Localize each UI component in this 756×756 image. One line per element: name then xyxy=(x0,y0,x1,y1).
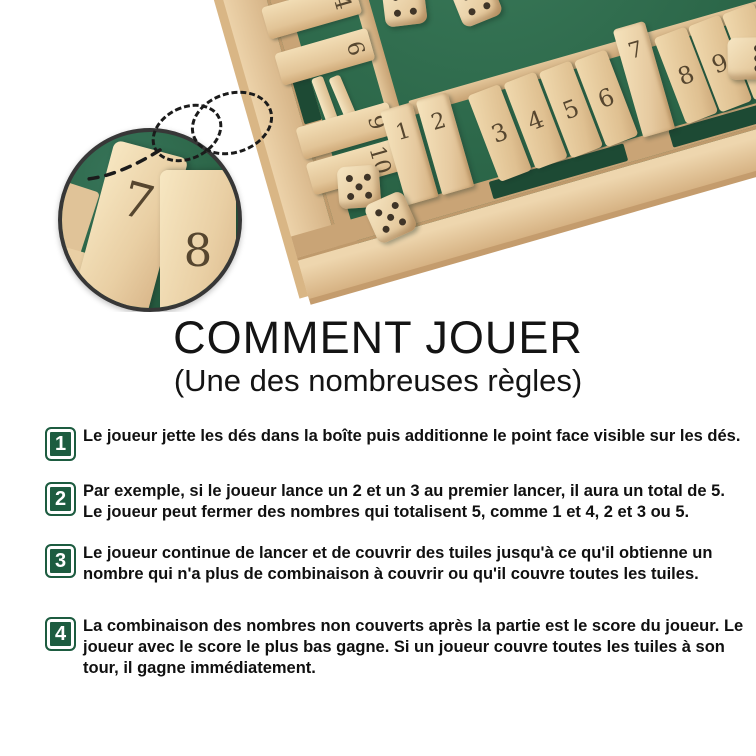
step-1-badge: 1 xyxy=(45,427,76,461)
step-2-text: Par exemple, si le joueur lance un 2 et … xyxy=(83,481,746,523)
step-1: 1 Le joueur jette les dés dans la boîte … xyxy=(45,426,746,461)
step-4-text: La combinaison des nombres non couverts … xyxy=(83,616,746,679)
page-title: COMMENT JOUER xyxy=(0,314,756,362)
die xyxy=(381,0,428,28)
instruction-steps: 1 Le joueur jette les dés dans la boîte … xyxy=(0,400,756,679)
step-4: 4 La combinaison des nombres non couvert… xyxy=(45,616,746,679)
inset-tile-8: 8 xyxy=(160,170,236,312)
magnifier-inset: 7 8 xyxy=(58,128,242,312)
step-3: 3 Le joueur continue de lancer et de cou… xyxy=(45,543,746,585)
page-subtitle: (Une des nombreuses règles) xyxy=(0,362,756,400)
step-2-badge: 2 xyxy=(45,482,76,516)
step-4-badge: 4 xyxy=(45,617,76,651)
product-photo: 4 6 9 10 1 2 3 4 5 6 7 8 9 10 7 8 xyxy=(0,0,756,312)
die xyxy=(449,0,504,29)
step-3-badge: 3 xyxy=(45,544,76,578)
step-2: 2 Par exemple, si le joueur lance un 2 e… xyxy=(45,481,746,523)
heading-block: COMMENT JOUER (Une des nombreuses règles… xyxy=(0,314,756,400)
step-3-text: Le joueur continue de lancer et de couvr… xyxy=(83,543,746,585)
die xyxy=(727,37,756,80)
game-board: 4 6 9 10 1 2 3 4 5 6 7 8 9 10 xyxy=(176,0,756,296)
step-1-text: Le joueur jette les dés dans la boîte pu… xyxy=(83,426,740,447)
